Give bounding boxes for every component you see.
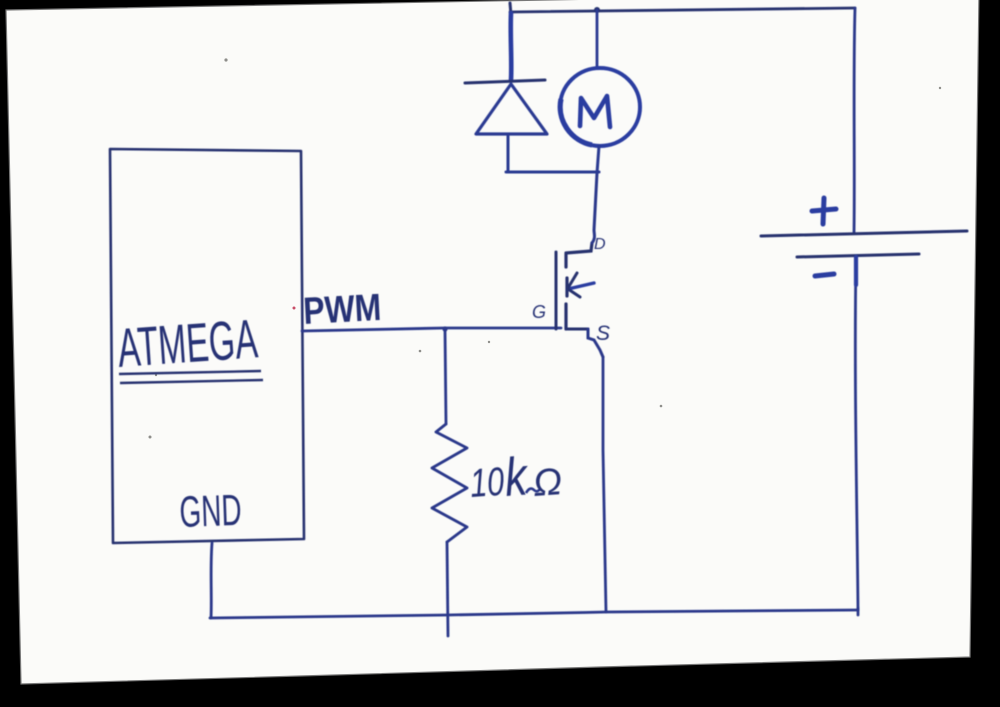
svg-text:D: D [594, 236, 606, 253]
svg-text:10: 10 [469, 460, 506, 506]
svg-text:Ω: Ω [532, 461, 564, 505]
svg-text:PWM: PWM [302, 287, 382, 333]
svg-text:ATMEGA: ATMEGA [116, 307, 260, 379]
svg-text:S: S [596, 322, 610, 345]
svg-text:GND: GND [179, 486, 243, 537]
svg-text:G: G [532, 302, 546, 322]
